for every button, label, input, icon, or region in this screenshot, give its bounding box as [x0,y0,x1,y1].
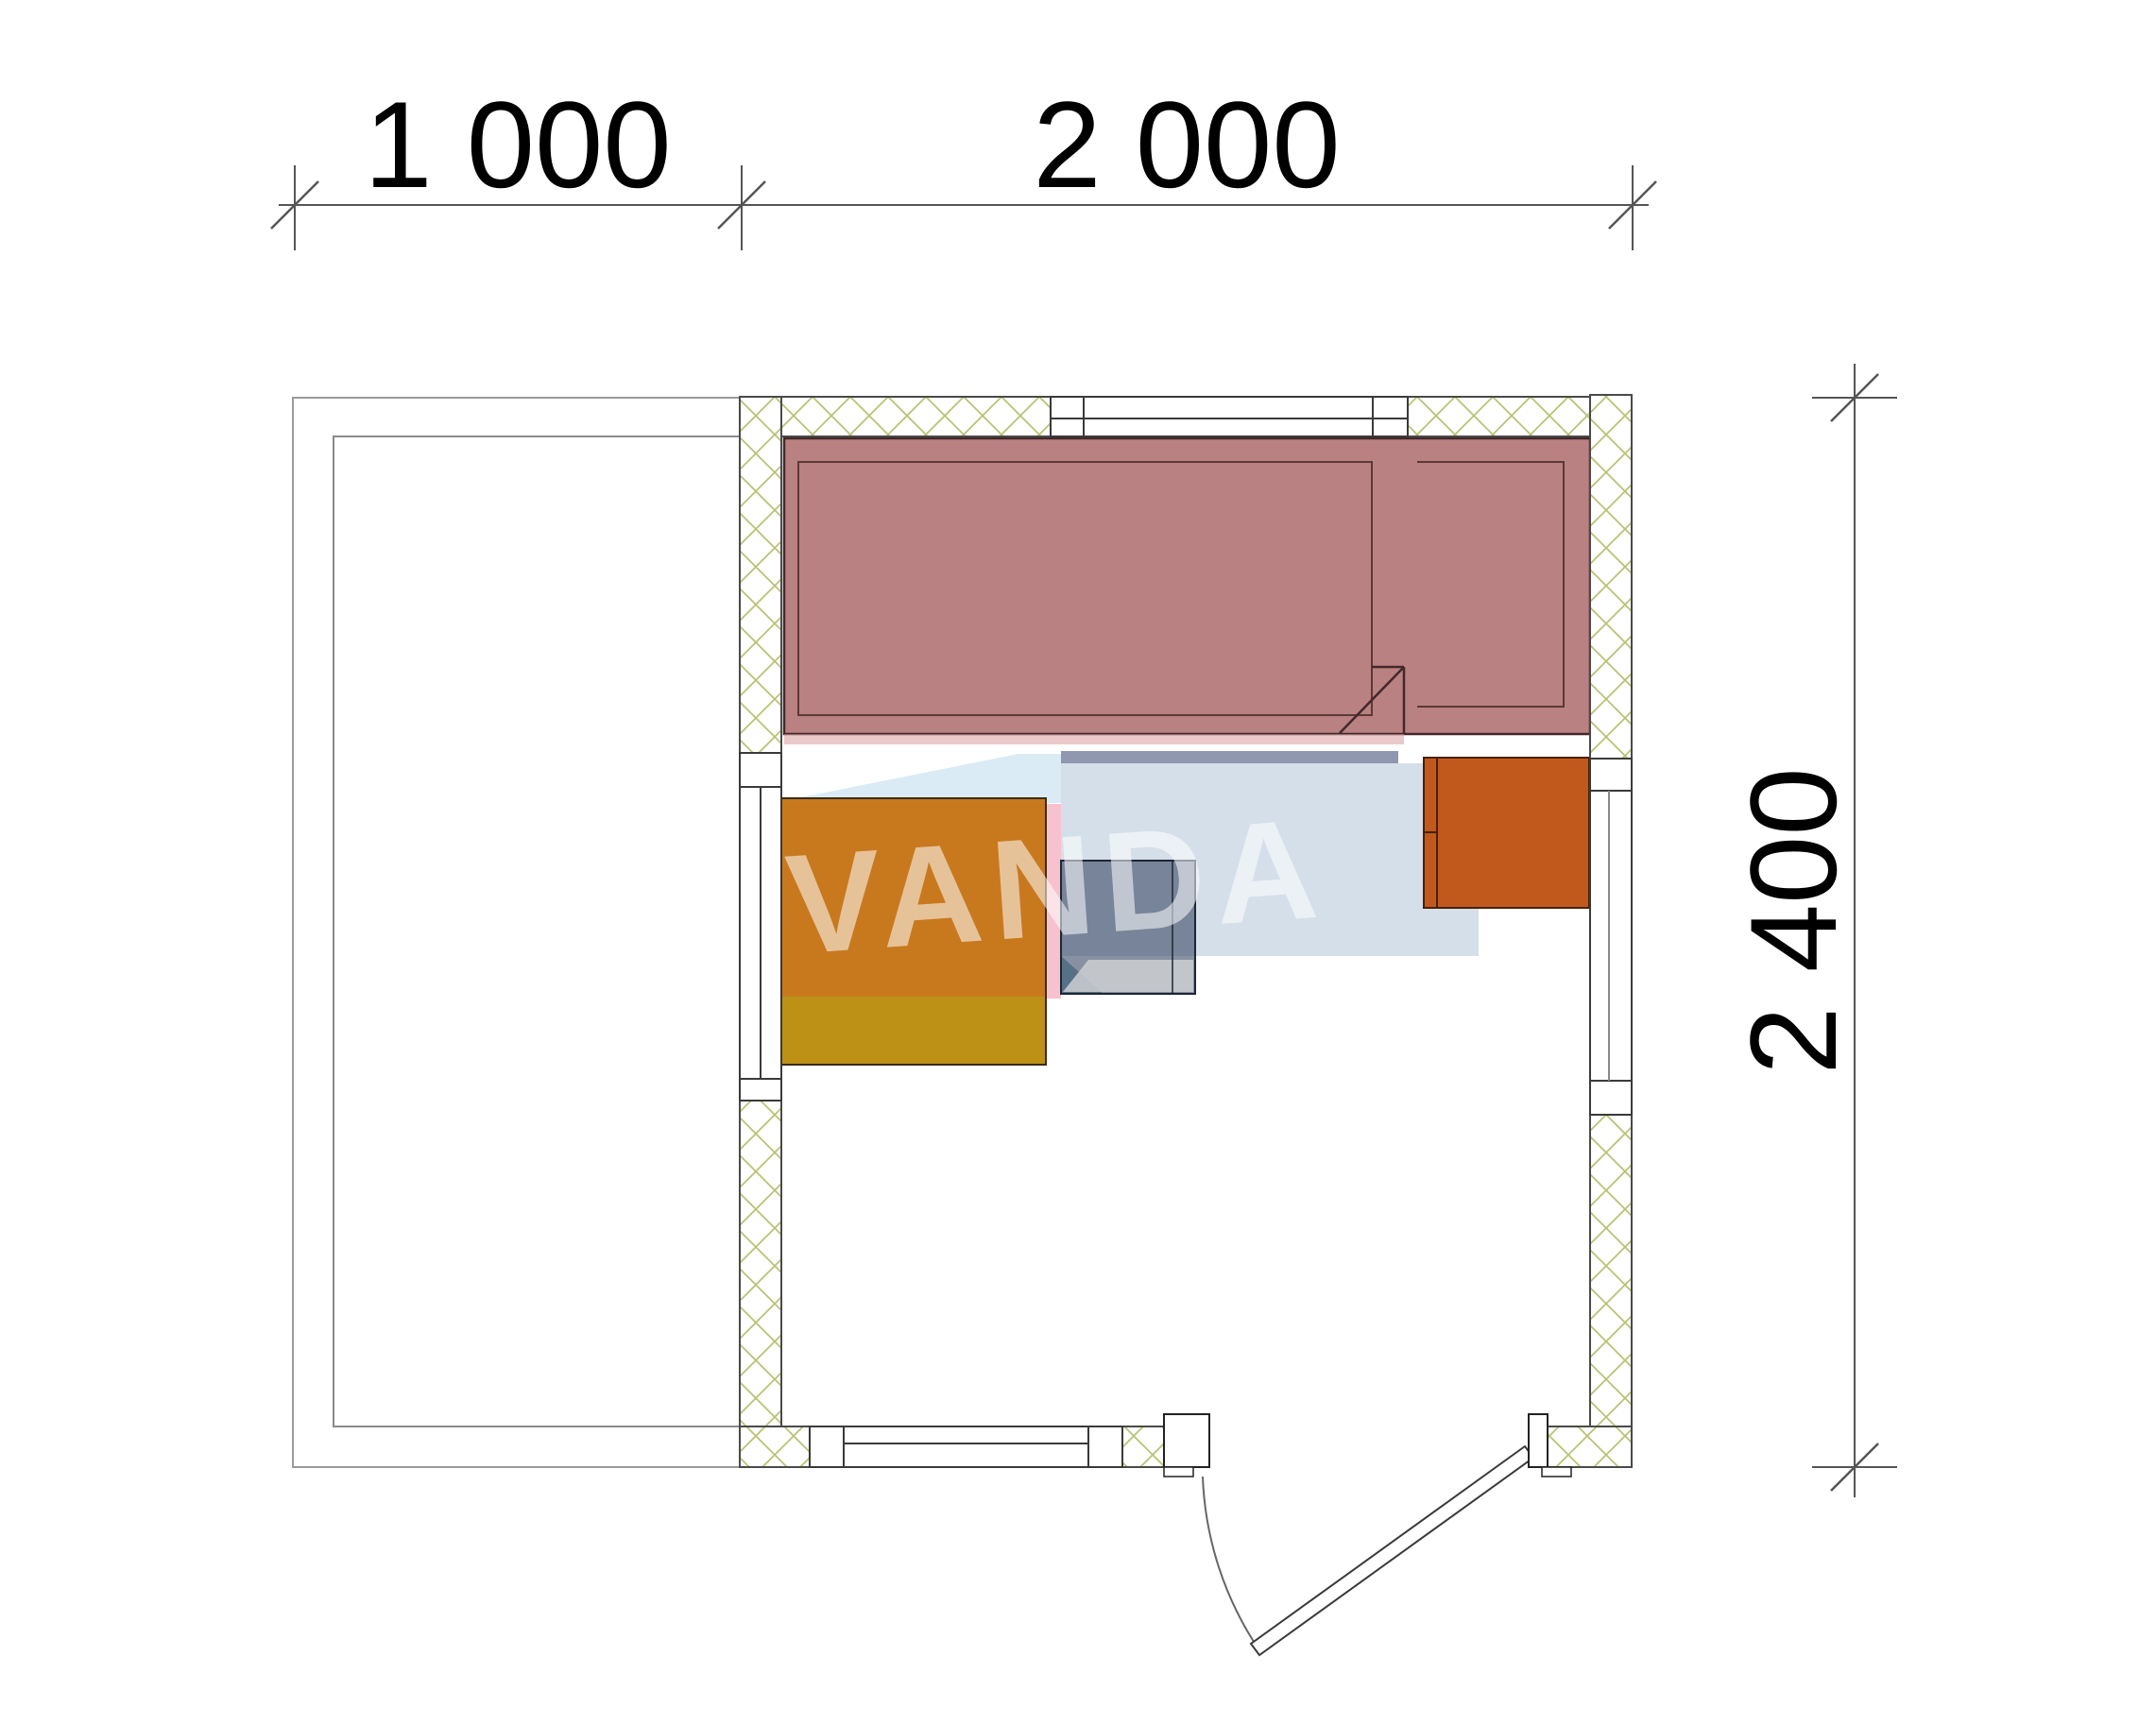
window-left [740,753,781,1101]
entrance-door [1164,1414,1571,1655]
door-leaf [1251,1446,1533,1655]
wall-top-left-segment [740,397,1051,436]
wall-bottom-mid-segment [1122,1426,1164,1467]
sauna-bench [784,438,1590,744]
watermark-top-rim [1061,751,1398,763]
heater [1424,758,1589,908]
floor-plan-drawing: VANDA [0,0,2156,1725]
dimension-top: 1 000 2 000 [271,76,1656,250]
porch-outline [293,398,740,1467]
wall-bottom-right-corner [1547,1426,1632,1467]
door-jamb-right [1529,1414,1548,1467]
floor-plan-sheet: VANDA [0,0,2156,1725]
wall-right-upper-segment [1590,395,1632,759]
wall-right-lower-segment [1590,1115,1632,1426]
dimension-label-cabin-depth: 2 400 [1724,767,1862,1074]
wall-bottom-left-corner [740,1426,810,1467]
dimension-label-cabin-width: 2 000 [1033,76,1340,213]
door-swing-arc [1203,1477,1259,1650]
window-top [1051,397,1408,436]
wall-left-upper-segment [740,397,781,753]
dimension-label-porch-width: 1 000 [364,76,671,213]
wall-left-lower-segment [740,1101,781,1426]
door-jamb-left [1164,1414,1209,1467]
window-bottom [810,1426,1122,1467]
window-right [1590,759,1632,1115]
watermark-top-face [773,754,1061,803]
dimension-right: 2 400 [1724,364,1897,1497]
